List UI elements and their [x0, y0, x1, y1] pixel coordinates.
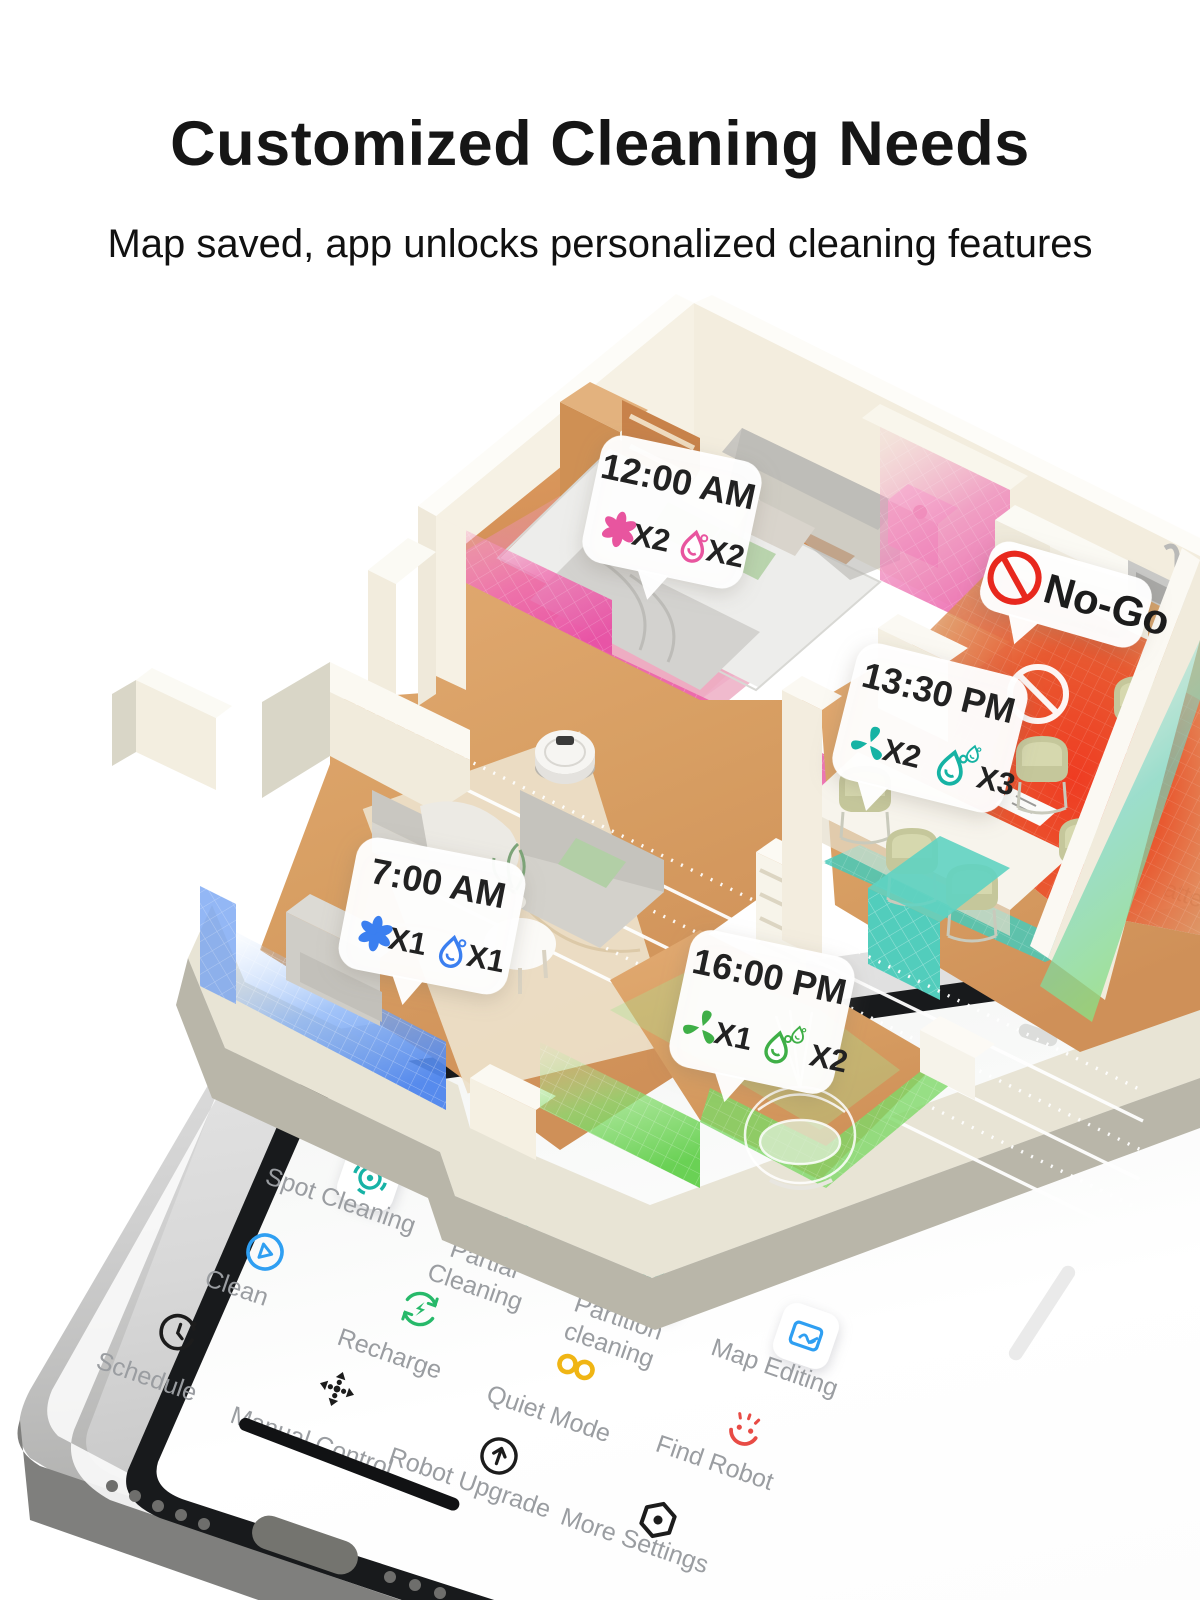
svg-text:X1: X1	[464, 938, 508, 980]
svg-text:X1: X1	[386, 921, 430, 963]
